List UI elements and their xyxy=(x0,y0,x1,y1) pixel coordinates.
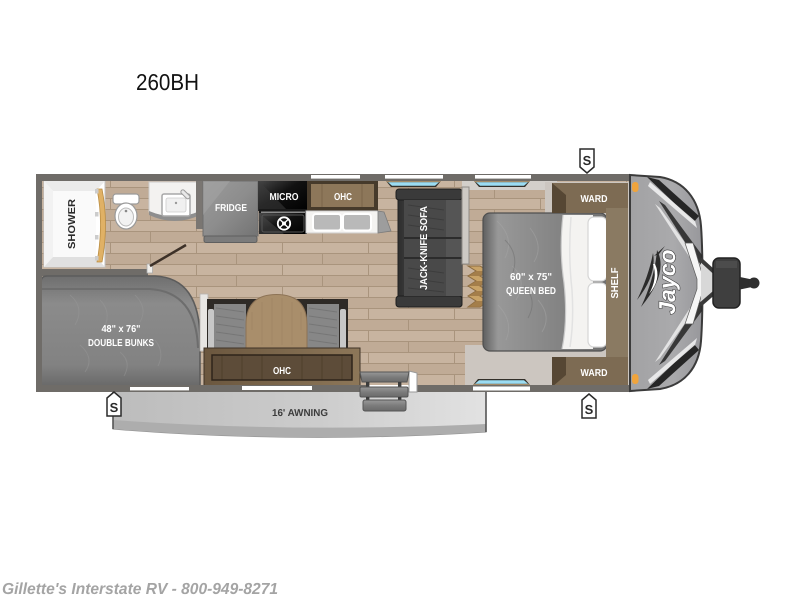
svg-text:S: S xyxy=(110,400,119,415)
svg-text:WARD: WARD xyxy=(581,368,608,379)
svg-text:S: S xyxy=(585,402,594,417)
svg-text:260BH: 260BH xyxy=(136,69,199,95)
svg-text:SHOWER: SHOWER xyxy=(67,198,78,249)
svg-text:48" x 76": 48" x 76" xyxy=(102,324,141,335)
svg-text:OHC: OHC xyxy=(273,366,291,377)
svg-text:60" x 75": 60" x 75" xyxy=(510,272,552,283)
svg-text:Jayco: Jayco xyxy=(654,249,680,314)
svg-text:SHELF: SHELF xyxy=(610,268,621,299)
svg-text:16' AWNING: 16' AWNING xyxy=(272,408,328,419)
svg-text:QUEEN BED: QUEEN BED xyxy=(506,286,556,297)
svg-text:JACK-KNIFE SOFA: JACK-KNIFE SOFA xyxy=(419,206,430,290)
svg-text:FRIDGE: FRIDGE xyxy=(215,203,247,214)
svg-text:MICRO: MICRO xyxy=(270,192,299,203)
svg-text:S: S xyxy=(583,153,592,168)
svg-text:WARD: WARD xyxy=(581,194,608,205)
svg-text:OHC: OHC xyxy=(334,192,352,203)
svg-text:Gillette's Interstate RV - 800: Gillette's Interstate RV - 800-949-8271 xyxy=(2,581,278,598)
svg-text:DOUBLE BUNKS: DOUBLE BUNKS xyxy=(88,338,154,349)
